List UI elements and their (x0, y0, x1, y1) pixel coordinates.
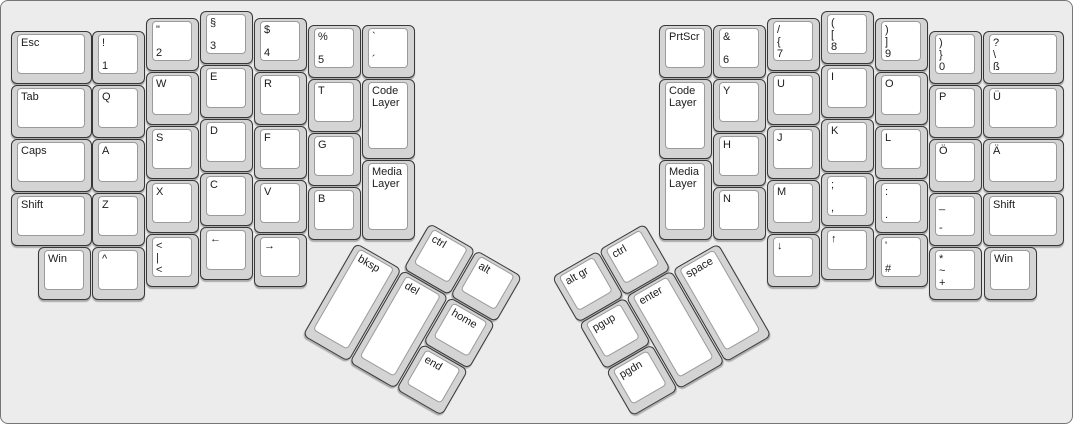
keycap-surface: Win (990, 250, 1030, 290)
keycap-surface: <|< (152, 237, 192, 277)
key-a-umlaut[interactable]: Ä (983, 139, 1064, 192)
key-tab[interactable]: Tab (11, 85, 92, 138)
key-label: % (318, 31, 352, 43)
key-label: Media Layer (669, 166, 703, 190)
key-f[interactable]: F (254, 126, 307, 179)
keycap-surface: I (827, 68, 867, 108)
keycap-surface: alt (460, 256, 515, 311)
key-shift-left[interactable]: Shift (11, 193, 92, 246)
key-5[interactable]: %5 (308, 25, 361, 78)
key-b[interactable]: B (308, 187, 361, 240)
keycap-surface: X (152, 183, 192, 223)
keycap-surface: Ö (935, 142, 975, 182)
key-caps[interactable]: Caps (11, 139, 92, 192)
keycap-surface: )}0 (935, 34, 975, 74)
key-label: ctrl (610, 233, 645, 260)
keycap-surface: '# (881, 237, 921, 277)
key-u[interactable]: U (767, 72, 820, 125)
key-u-umlaut[interactable]: Ü (983, 85, 1064, 138)
key-o-umlaut[interactable]: Ö (929, 139, 982, 192)
key-label: Ü (993, 91, 1055, 103)
keycap-surface: `´ (368, 28, 408, 68)
key-e[interactable]: E (200, 65, 253, 118)
key-label: F (264, 132, 298, 144)
key-label: space (684, 253, 719, 280)
keycap-surface: K (827, 122, 867, 162)
key-label: . (885, 209, 919, 221)
key-label: V (264, 186, 298, 198)
key-label: # (885, 263, 919, 275)
keycap-surface: ctrl (605, 230, 660, 285)
key-label: Win (994, 253, 1028, 265)
key-label: G (318, 139, 352, 151)
key-label: * (939, 253, 973, 265)
key-label: 3 (210, 40, 244, 52)
keycap-surface: Z (98, 196, 138, 236)
keycap-surface: Code Layer (368, 82, 408, 149)
key-label: A (102, 145, 136, 157)
keycap-surface: T (314, 82, 354, 122)
key-label: < (156, 240, 190, 252)
keycap-surface: /{7 (773, 21, 813, 61)
keycap-surface: ← (206, 230, 246, 270)
key-label: ↑ (831, 233, 865, 245)
key-label: + (939, 277, 973, 289)
key-underscore-dash[interactable]: _- (929, 193, 982, 246)
keycap-surface: !1 (98, 34, 138, 74)
key-c[interactable]: C (200, 173, 253, 226)
keycap-surface: P (935, 88, 975, 128)
keycap-surface: ([8 (827, 14, 867, 54)
key-label: ( (831, 17, 865, 29)
key-label: ` (372, 31, 406, 43)
key-quote-hash[interactable]: '# (875, 234, 928, 287)
key-label: T (318, 85, 352, 97)
key-grave-acute[interactable]: `´ (362, 25, 415, 78)
key-label: → (264, 240, 298, 252)
keycap-surface: ↑ (827, 230, 867, 270)
key-label: K (831, 125, 865, 137)
key-label: 1 (102, 60, 136, 72)
keycap-surface: alt gr (558, 257, 613, 312)
keycap-surface: U (773, 75, 813, 115)
keycap-surface: C (206, 176, 246, 216)
key-label: C (210, 179, 244, 191)
key-colon[interactable]: :. (875, 180, 928, 233)
key-prtscr[interactable]: PrtScr (659, 25, 712, 78)
key-label: 6 (723, 54, 757, 66)
key-label: Code Layer (372, 85, 406, 109)
key-4[interactable]: $4 (254, 18, 307, 71)
key-media-layer-right[interactable]: Media Layer (659, 160, 712, 240)
key-label: 9 (885, 48, 919, 60)
key-7[interactable]: /{7 (767, 18, 820, 71)
key-label: M (777, 186, 811, 198)
key-0[interactable]: )}0 (929, 31, 982, 84)
keycap-surface: Y (719, 82, 759, 122)
key-label: B (318, 193, 352, 205)
key-l[interactable]: L (875, 126, 928, 179)
key-1[interactable]: !1 (92, 31, 145, 84)
key-label: ← (210, 233, 244, 245)
key-arrow-left[interactable]: ← (200, 227, 253, 280)
key-i[interactable]: I (821, 65, 874, 118)
key-label: J (777, 132, 811, 144)
key-label: { (777, 36, 811, 48)
key-code-layer-right[interactable]: Code Layer (659, 79, 712, 159)
key-label: Esc (21, 37, 83, 49)
keycap-surface: "2 (152, 21, 192, 61)
keycap-surface: ↓ (773, 237, 813, 277)
key-asterisk-tilde-plus[interactable]: *~+ (929, 247, 982, 300)
key-label: 8 (831, 41, 865, 53)
keyboard-layout-canvas: EscTabCapsShiftWin!1QAZ^"2WSX<|<§3EDC←$4… (0, 0, 1073, 424)
key-label: 5 (318, 54, 352, 66)
keycap-surface: M (773, 183, 813, 223)
keycap-surface: J (773, 129, 813, 169)
key-label: L (885, 132, 919, 144)
key-s[interactable]: S (146, 126, 199, 179)
key-label: ctrl (429, 233, 464, 260)
key-v[interactable]: V (254, 180, 307, 233)
keycap-surface: Win (44, 250, 84, 290)
key-h[interactable]: H (713, 133, 766, 186)
keycap-surface: *~+ (935, 250, 975, 290)
keycap-surface: W (152, 75, 192, 115)
keycap-surface: )]9 (881, 21, 921, 61)
keycap-surface: Q (98, 88, 138, 128)
keycap-surface: Esc (17, 34, 85, 74)
key-label: ' (885, 240, 919, 252)
key-label: X (156, 186, 190, 198)
key-label: H (723, 139, 757, 151)
key-shift-right[interactable]: Shift (983, 193, 1064, 246)
key-label: , (831, 202, 865, 214)
key-k[interactable]: K (821, 119, 874, 172)
key-x[interactable]: X (146, 180, 199, 233)
key-o[interactable]: O (875, 72, 928, 125)
key-label: ) (939, 37, 973, 49)
key-label: 0 (939, 61, 973, 73)
key-r[interactable]: R (254, 72, 307, 125)
key-label: Ö (939, 145, 973, 157)
key-n[interactable]: N (713, 187, 766, 240)
key-label: Tab (21, 91, 83, 103)
key-code-layer-left[interactable]: Code Layer (362, 79, 415, 159)
key-label: ) (885, 24, 919, 36)
key-label: / (777, 24, 811, 36)
keycap-surface: V (260, 183, 300, 223)
key-semicolon[interactable]: ;, (821, 173, 874, 226)
key-label: alt (476, 260, 511, 287)
keycap-surface: E (206, 68, 246, 108)
key-label: alt gr (563, 260, 598, 287)
key-label: [ (831, 29, 865, 41)
key-w[interactable]: W (146, 72, 199, 125)
key-label: \ (993, 49, 1055, 61)
key-label: ^ (102, 253, 136, 265)
keycap-surface: PrtScr (665, 28, 705, 68)
key-label: 2 (156, 47, 190, 59)
key-label: _ (939, 199, 973, 211)
keycap-surface: → (260, 237, 300, 277)
key-label: | (156, 252, 190, 264)
key-a[interactable]: A (92, 139, 145, 192)
key-label: E (210, 71, 244, 83)
keycap-surface: B (314, 190, 354, 230)
key-label: - (939, 222, 973, 234)
key-p[interactable]: P (929, 85, 982, 138)
keycap-surface: §3 (206, 14, 246, 54)
key-label: I (831, 71, 865, 83)
key-win-right[interactable]: Win (984, 247, 1037, 300)
keycap-surface: %5 (314, 28, 354, 68)
keycap-surface: Ü (989, 88, 1057, 128)
keycap-surface: Ä (989, 142, 1057, 182)
key-label: : (885, 186, 919, 198)
key-label: R (264, 78, 298, 90)
keycap-surface: :. (881, 183, 921, 223)
key-label: O (885, 78, 919, 90)
keycap-surface: ?\ß (989, 34, 1057, 74)
keycap-surface: O (881, 75, 921, 115)
key-t[interactable]: T (308, 79, 361, 132)
key-q[interactable]: Q (92, 85, 145, 138)
key-label: } (939, 49, 973, 61)
key-label: Code Layer (669, 85, 703, 109)
keycap-surface: Shift (989, 196, 1057, 236)
key-j[interactable]: J (767, 126, 820, 179)
key-label: N (723, 193, 757, 205)
key-label: PrtScr (669, 31, 703, 43)
keycap-surface: Caps (17, 142, 85, 182)
key-label: ; (831, 179, 865, 191)
key-label: " (156, 24, 190, 36)
key-label: ↓ (777, 240, 811, 252)
key-label: D (210, 125, 244, 137)
key-label: $ (264, 24, 298, 36)
keycap-surface: D (206, 122, 246, 162)
keycap-surface: S (152, 129, 192, 169)
key-m[interactable]: M (767, 180, 820, 233)
key-label: ß (993, 61, 1055, 73)
key-y[interactable]: Y (713, 79, 766, 132)
key-label: Shift (21, 199, 83, 211)
keycap-surface: _- (935, 196, 975, 236)
key-eszett[interactable]: ?\ß (983, 31, 1064, 84)
keycap-surface: ctrl (413, 229, 468, 284)
key-label: Ä (993, 145, 1055, 157)
key-label: bksp (356, 253, 391, 280)
key-g[interactable]: G (308, 133, 361, 186)
keycap-surface: L (881, 129, 921, 169)
keycap-surface: G (314, 136, 354, 176)
key-label: P (939, 91, 973, 103)
key-angle-pipe[interactable]: <|< (146, 234, 199, 287)
keycap-surface: Shift (17, 196, 85, 236)
key-label: ? (993, 37, 1055, 49)
key-label: Win (48, 253, 82, 265)
keycap-surface: F (260, 129, 300, 169)
key-label: < (156, 264, 190, 276)
key-label: ~ (939, 265, 973, 277)
keycap-surface: Tab (17, 88, 85, 128)
keycap-surface: $4 (260, 21, 300, 61)
keycap-surface: ;, (827, 176, 867, 216)
key-d[interactable]: D (200, 119, 253, 172)
keycap-surface: Code Layer (665, 82, 705, 149)
key-9[interactable]: )]9 (875, 18, 928, 71)
key-arrow-down[interactable]: ↓ (767, 234, 820, 287)
key-label: 7 (777, 48, 811, 60)
key-label: Q (102, 91, 136, 103)
key-3[interactable]: §3 (200, 11, 253, 64)
key-label: Shift (993, 199, 1055, 211)
key-label: 4 (264, 47, 298, 59)
key-esc[interactable]: Esc (11, 31, 92, 84)
key-label: ´ (372, 54, 406, 66)
key-label: S (156, 132, 190, 144)
keycap-surface: H (719, 136, 759, 176)
key-arrow-up[interactable]: ↑ (821, 227, 874, 280)
key-label: Z (102, 199, 136, 211)
key-arrow-right[interactable]: → (254, 234, 307, 287)
key-6[interactable]: &6 (713, 25, 766, 78)
keycap-surface: Media Layer (665, 163, 705, 230)
key-label: ! (102, 37, 136, 49)
key-label: § (210, 17, 244, 29)
key-win-left[interactable]: Win (38, 247, 91, 300)
key-label: Caps (21, 145, 83, 157)
key-2[interactable]: "2 (146, 18, 199, 71)
key-circumflex[interactable]: ^ (92, 247, 145, 300)
key-z[interactable]: Z (92, 193, 145, 246)
key-8[interactable]: ([8 (821, 11, 874, 64)
key-label: W (156, 78, 190, 90)
keycap-surface: R (260, 75, 300, 115)
keycap-surface: &6 (719, 28, 759, 68)
key-label: U (777, 78, 811, 90)
keycap-surface: ^ (98, 250, 138, 290)
key-label: Y (723, 85, 757, 97)
key-label: & (723, 31, 757, 43)
key-label: Media Layer (372, 166, 406, 190)
key-label: ] (885, 36, 919, 48)
keycap-surface: N (719, 190, 759, 230)
keycap-surface: A (98, 142, 138, 182)
